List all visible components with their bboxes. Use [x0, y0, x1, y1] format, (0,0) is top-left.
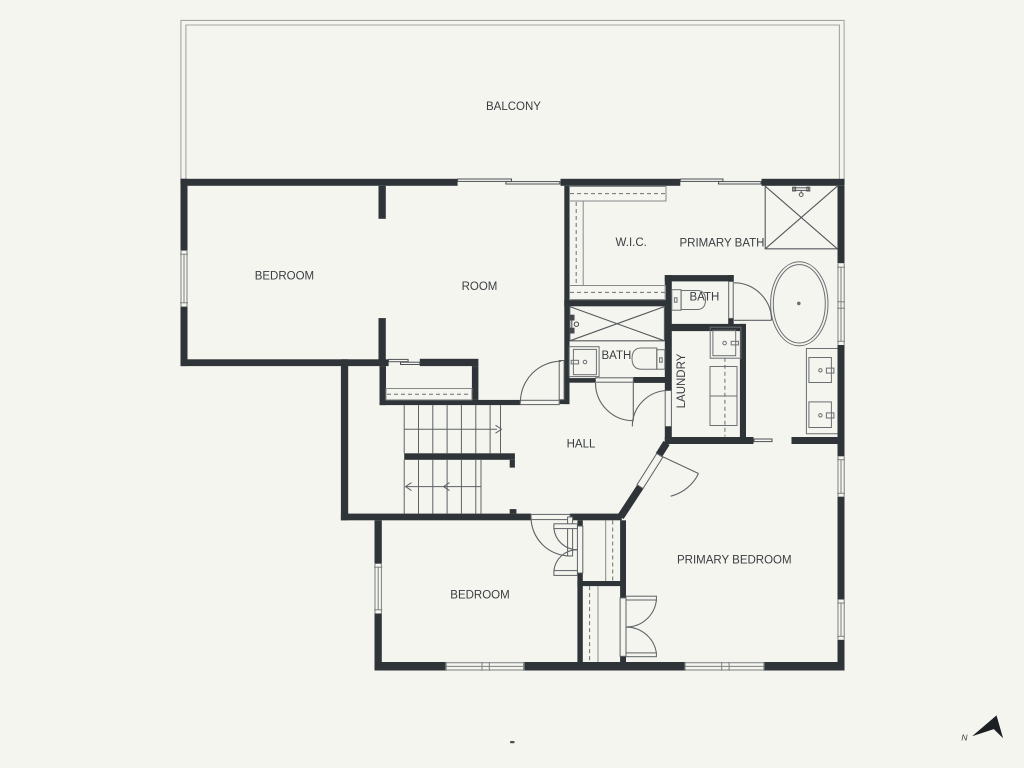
svg-text:BATH: BATH: [689, 292, 719, 304]
svg-text:PRIMARY BEDROOM: PRIMARY BEDROOM: [677, 555, 792, 567]
svg-text:N: N: [961, 733, 968, 743]
svg-text:BEDROOM: BEDROOM: [255, 271, 314, 283]
svg-text:BEDROOM: BEDROOM: [450, 590, 509, 602]
svg-text:BALCONY: BALCONY: [486, 101, 541, 113]
svg-text:ROOM: ROOM: [462, 281, 498, 293]
svg-text:BATH: BATH: [601, 350, 631, 362]
svg-text:HALL: HALL: [567, 439, 596, 451]
svg-text:PRIMARY BATH: PRIMARY BATH: [680, 238, 765, 250]
svg-text:W.I.C.: W.I.C.: [616, 237, 647, 249]
svg-text:LAUNDRY: LAUNDRY: [676, 353, 688, 408]
